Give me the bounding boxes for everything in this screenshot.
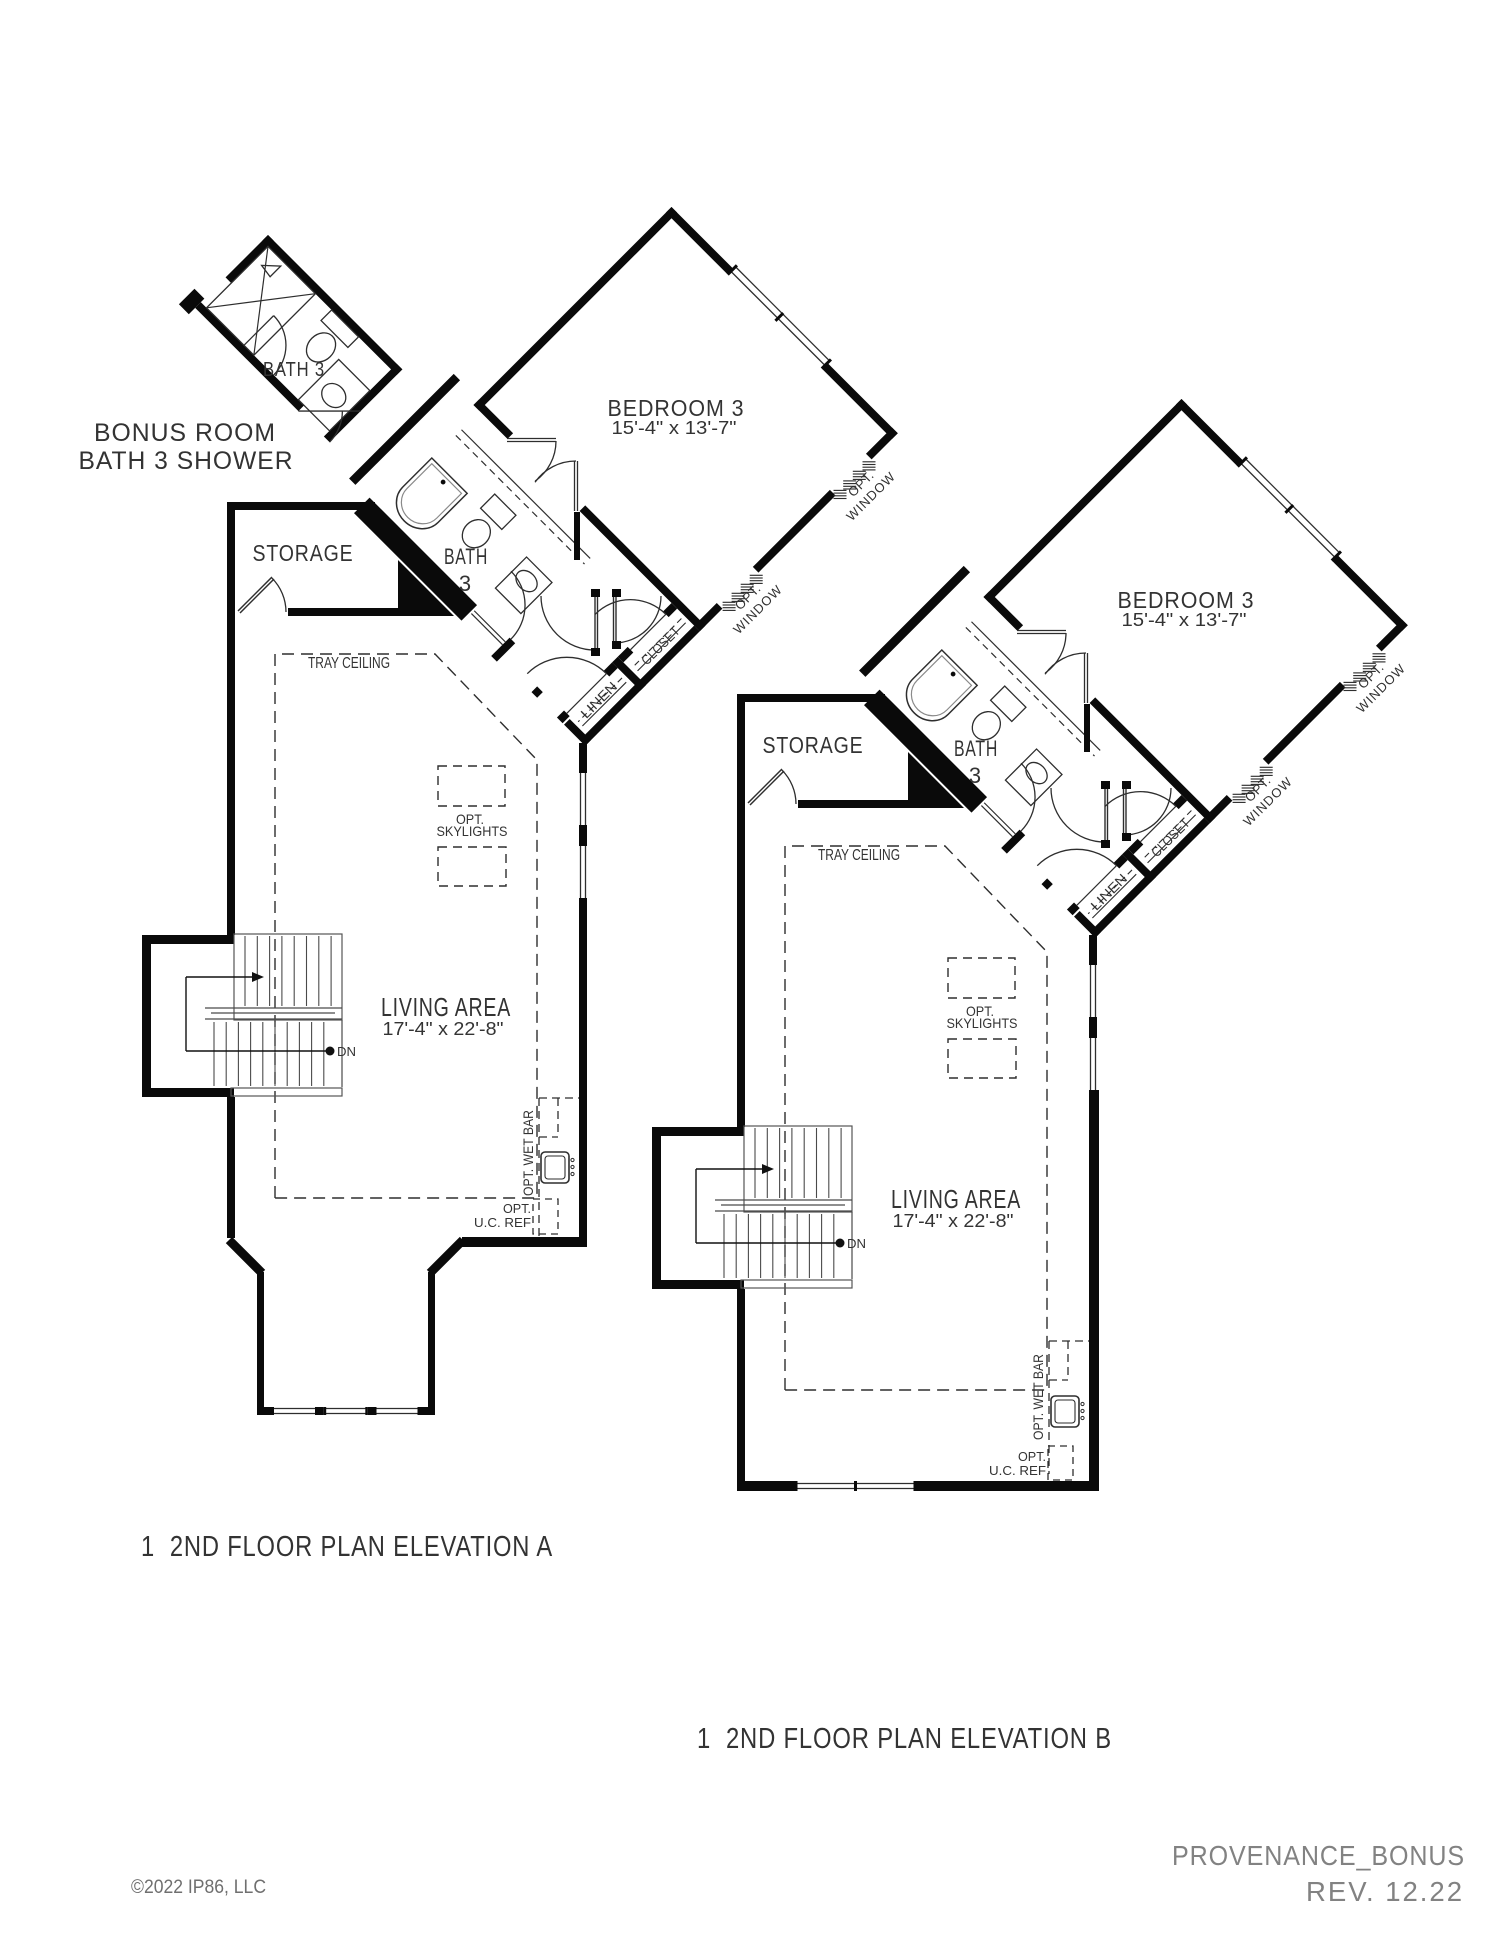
svg-text:1 2ND FLOOR PLAN ELEVATION A: 1 2ND FLOOR PLAN ELEVATION A — [141, 1531, 553, 1563]
svg-text:PROVENANCE_BONUS: PROVENANCE_BONUS — [1172, 1840, 1465, 1871]
svg-text:OPT. WET BAR: OPT. WET BAR — [1030, 1354, 1046, 1440]
svg-text:OPT. WET BAR: OPT. WET BAR — [520, 1110, 536, 1196]
svg-text:REV. 12.22: REV. 12.22 — [1306, 1876, 1464, 1907]
svg-text:1 2ND FLOOR PLAN ELEVATION B: 1 2ND FLOOR PLAN ELEVATION B — [697, 1723, 1112, 1755]
svg-text:BATH 3 SHOWER: BATH 3 SHOWER — [79, 447, 294, 475]
svg-text:OPT.: OPT. — [1018, 1449, 1046, 1464]
svg-text:©2022 IP86, LLC: ©2022 IP86, LLC — [131, 1877, 266, 1898]
svg-text:U.C. REF: U.C. REF — [989, 1463, 1046, 1478]
svg-text:BONUS ROOM: BONUS ROOM — [94, 419, 276, 447]
svg-text:U.C. REF: U.C. REF — [474, 1215, 531, 1230]
svg-text:BATH 3: BATH 3 — [263, 359, 325, 381]
svg-text:OPT.: OPT. — [503, 1201, 531, 1216]
